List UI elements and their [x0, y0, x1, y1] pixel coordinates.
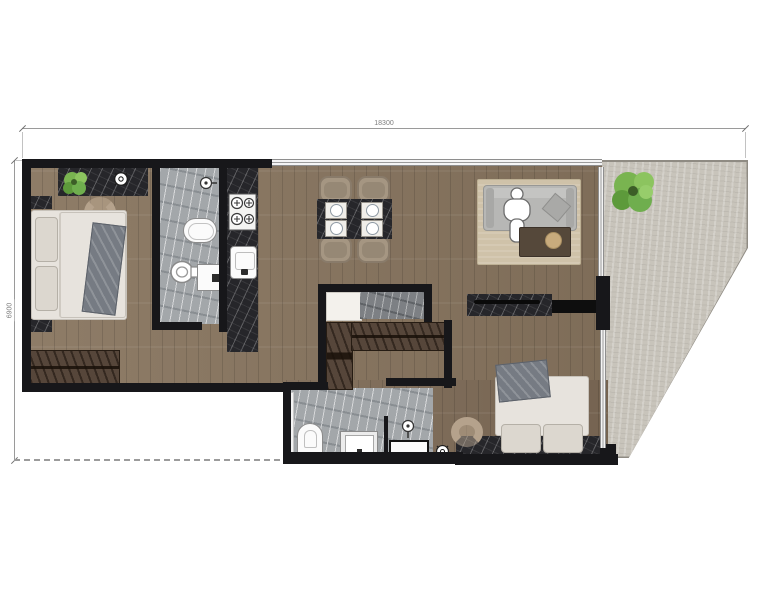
- ceiling-light-icon: [112, 170, 130, 188]
- wall-bath1-bottom: [152, 322, 202, 330]
- tv-console: [467, 294, 552, 316]
- wall-bath2-left: [283, 388, 291, 460]
- wall-left: [22, 159, 31, 392]
- shower-divider: [384, 416, 388, 454]
- island-counter-marble: [360, 292, 424, 319]
- place-setting: [361, 220, 383, 237]
- wall-bath1-right: [219, 167, 227, 332]
- bedroom1-plant-icon: [59, 167, 91, 199]
- window-top: [272, 159, 602, 166]
- bed1-pillow-top: [35, 217, 58, 262]
- sink1-faucet: [212, 274, 219, 282]
- left-extension-top: [15, 160, 22, 161]
- top-dimension-tick-right: [742, 125, 749, 132]
- dining-chair-bottom-left: [319, 236, 352, 263]
- dining-chair-bottom-right: [357, 236, 390, 263]
- wall-bottom-left: [22, 383, 290, 392]
- top-extension-right: [745, 132, 746, 158]
- bedroom1-nightstand-top: [28, 196, 52, 209]
- window-right-bedroom2: [600, 330, 606, 448]
- bedroom1-bed: [31, 210, 125, 318]
- wall-bottom-bath2: [283, 452, 463, 464]
- toilet2-inner: [304, 430, 317, 448]
- plate: [330, 204, 343, 217]
- plate: [330, 222, 343, 235]
- window-right-living: [598, 167, 604, 276]
- closet-vertical: [326, 322, 353, 390]
- dining-table: [317, 199, 392, 239]
- bedroom1-wardrobe: [30, 350, 120, 385]
- bed1-pillow-bottom: [35, 266, 58, 311]
- media-shelf: [552, 300, 602, 313]
- top-dimension-label: 18300: [371, 119, 396, 128]
- chair-seat: [362, 182, 385, 198]
- plate: [366, 204, 379, 217]
- bedroom1-nightstand-bottom: [28, 319, 52, 332]
- wall-right-mid: [596, 276, 610, 330]
- place-setting: [325, 220, 347, 237]
- sofa-armrest-left: [486, 188, 494, 228]
- boundary-dashed-line: [14, 459, 290, 461]
- bathtub-inner: [188, 223, 214, 240]
- island-counter-white: [326, 292, 362, 321]
- shower-head-icon-bath1: [198, 175, 218, 191]
- shower-head-icon-bath2: [400, 419, 416, 439]
- wall-top-solid: [22, 159, 272, 168]
- wall-bottom-bedroom2: [455, 454, 618, 465]
- bathtub: [183, 218, 217, 243]
- bed2-throw-blanket: [495, 359, 551, 402]
- floor-plan: 18300 6900: [0, 0, 773, 600]
- left-dimension-label: 6900: [5, 300, 14, 322]
- chair-seat: [324, 242, 347, 258]
- bed2-pillow-right: [543, 424, 583, 453]
- wall-bath1-left: [152, 167, 160, 330]
- wall-bath2-top-left: [283, 382, 328, 390]
- plate: [366, 222, 379, 235]
- kitchen-sink: [230, 246, 257, 279]
- decor-tray: [545, 232, 562, 249]
- bedroom2-chair: [451, 417, 483, 447]
- top-dimension-line: [22, 128, 746, 129]
- top-extension-left: [22, 132, 23, 158]
- closet-horizontal: [351, 322, 445, 351]
- kitchen-sink-basin: [235, 252, 255, 270]
- wall-island-top: [318, 284, 432, 292]
- toilet-icon-bath1: [169, 258, 199, 286]
- chair-seat: [362, 242, 385, 258]
- wall-bath2-top-right: [386, 378, 456, 386]
- kitchen-faucet: [241, 269, 248, 275]
- bed2-pillow-left: [501, 424, 541, 453]
- stove-icon: [228, 193, 257, 231]
- wall-island-left: [318, 284, 326, 390]
- chair-seat: [324, 182, 347, 198]
- place-setting: [361, 202, 383, 219]
- tv-screen: [474, 300, 540, 304]
- bedroom2-bed: [495, 362, 587, 454]
- terrace-plant-icon: [606, 164, 664, 222]
- wall-island-cap: [424, 284, 432, 322]
- place-setting: [325, 202, 347, 219]
